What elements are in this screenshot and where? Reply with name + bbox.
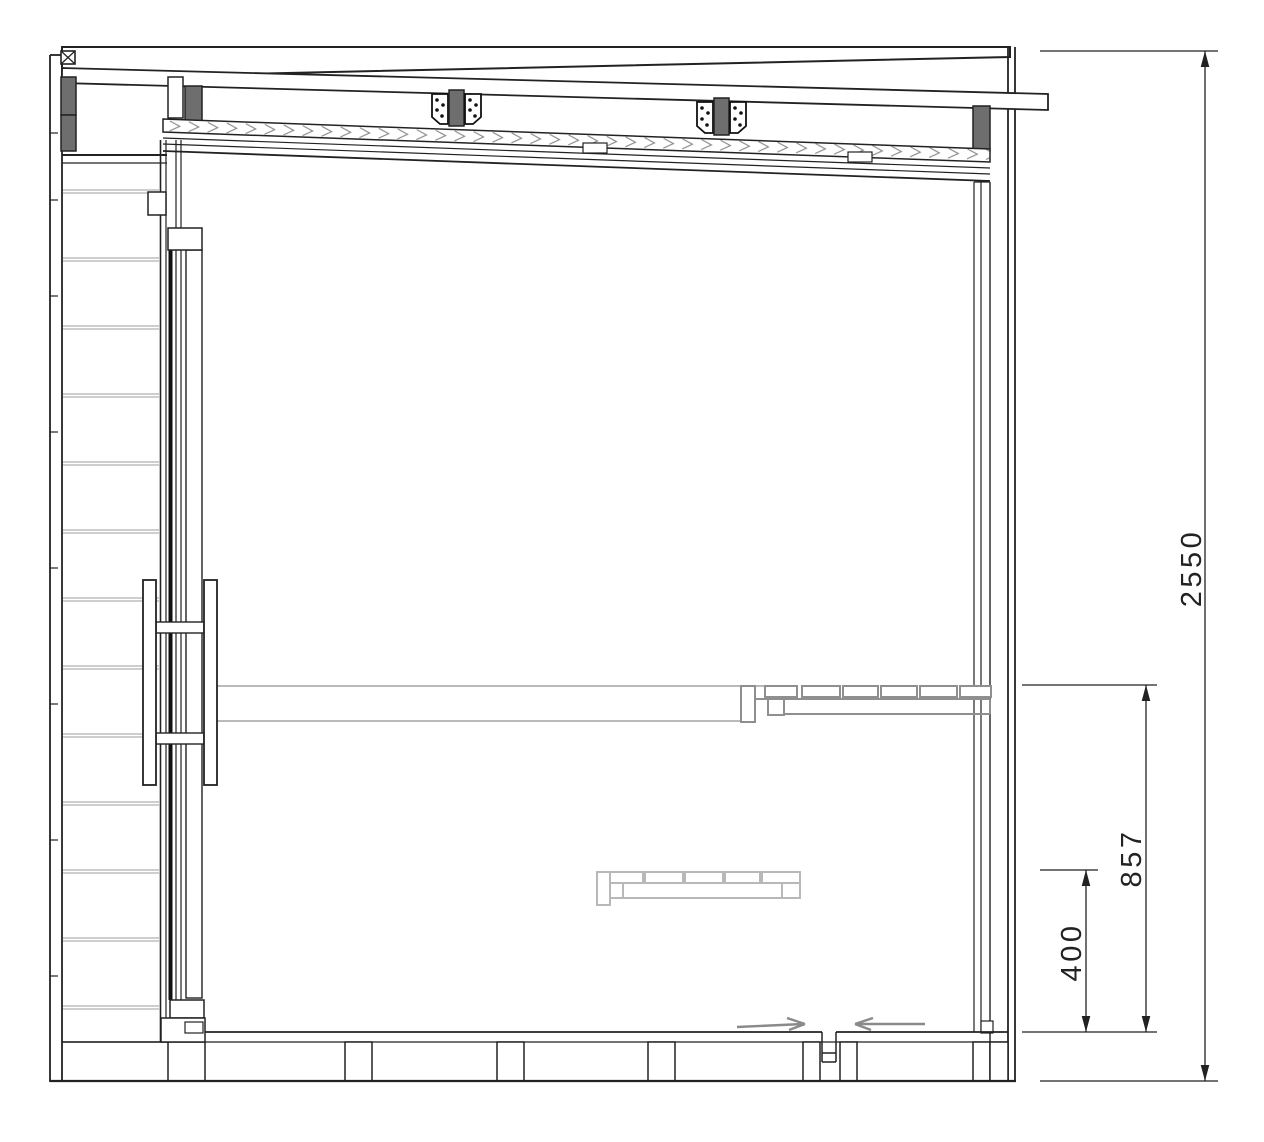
upper-bench-bracket [768, 699, 784, 715]
foundation-blocks [168, 1042, 1008, 1081]
airflow-arrow-right-icon [737, 1018, 805, 1030]
right-roof-post [973, 106, 990, 150]
arrow-down-icon [1142, 1016, 1151, 1032]
joist-hanger-left [432, 90, 481, 126]
lower-bench-slat [610, 872, 643, 883]
glass-door [143, 140, 217, 1042]
door-handle-outer [143, 580, 156, 785]
airflow-arrows [737, 1018, 925, 1030]
door-threshold-detail [185, 1022, 203, 1033]
left-wall-section [50, 47, 205, 1082]
door-head-detail [148, 192, 166, 215]
corner-post-lower [61, 115, 76, 151]
foundation-block [497, 1042, 524, 1081]
door-handles [143, 580, 217, 785]
arrow-up-icon [1201, 51, 1210, 67]
airflow-arrow-left-icon [855, 1018, 925, 1030]
joist-hanger-right [697, 98, 746, 135]
right-wall-section [974, 47, 1015, 1081]
lower-bench-slat [685, 872, 723, 883]
lower-bench-leg [597, 872, 610, 905]
left-roof-post [185, 86, 202, 121]
handle-bolt-lower [156, 733, 204, 744]
corner-post-upper [61, 77, 76, 115]
foundation-block [990, 1042, 1008, 1081]
foundation-block [973, 1042, 990, 1081]
arrow-up-icon [1082, 870, 1091, 886]
lower-bench-slat [645, 872, 683, 883]
upper-bench-slat [802, 686, 840, 697]
lower-bench-frame [610, 883, 800, 898]
foundation-block [168, 1042, 205, 1081]
left-trim-joints [50, 133, 58, 976]
upper-bench-slat [920, 686, 957, 697]
upper-bench-leg [741, 686, 755, 722]
hanger-post [449, 90, 464, 126]
door-head-stud [168, 77, 183, 118]
foundation-block [345, 1042, 372, 1081]
upper-bench-slat [881, 686, 917, 697]
arrow-down-icon [1082, 1016, 1091, 1032]
lower-bench [597, 872, 800, 905]
sauna-section-drawing: 2550 857 400 [0, 0, 1264, 1142]
upper-bench-slat [960, 686, 991, 697]
dim-label-upper-bench: 857 [1116, 829, 1148, 888]
dimension-lower-bench-height: 400 [1040, 870, 1098, 1032]
section-drawing-canvas: 2550 857 400 [0, 0, 1264, 1142]
floor-vent-gap [822, 1032, 836, 1062]
foundation-block [840, 1042, 857, 1081]
dim-label-lower-bench: 400 [1056, 923, 1088, 982]
roof-beam [62, 68, 1048, 110]
deck-joint-tab2 [848, 152, 872, 162]
lower-bench-slat [725, 872, 760, 883]
handle-bolt-upper [156, 622, 204, 633]
foundation-block [648, 1042, 675, 1081]
roof-assembly [61, 68, 1048, 181]
upper-bench [741, 686, 991, 722]
upper-bench-slat [765, 686, 797, 697]
door-top-rail [168, 228, 202, 250]
dim-label-overall-height: 2550 [1176, 529, 1208, 608]
dimension-upper-bench-height: 857 [1022, 685, 1157, 1032]
upper-bench-slat [843, 686, 878, 697]
arrow-up-icon [1142, 685, 1151, 701]
door-bottom-rail [170, 1000, 204, 1018]
hanger-post [714, 98, 729, 135]
foundation-block [803, 1042, 820, 1081]
lower-bench-slat [762, 872, 800, 883]
deck-joint-tab1 [583, 143, 607, 153]
benches [208, 686, 991, 905]
arrow-down-icon [1201, 1065, 1210, 1081]
door-handle-inner [204, 580, 217, 785]
